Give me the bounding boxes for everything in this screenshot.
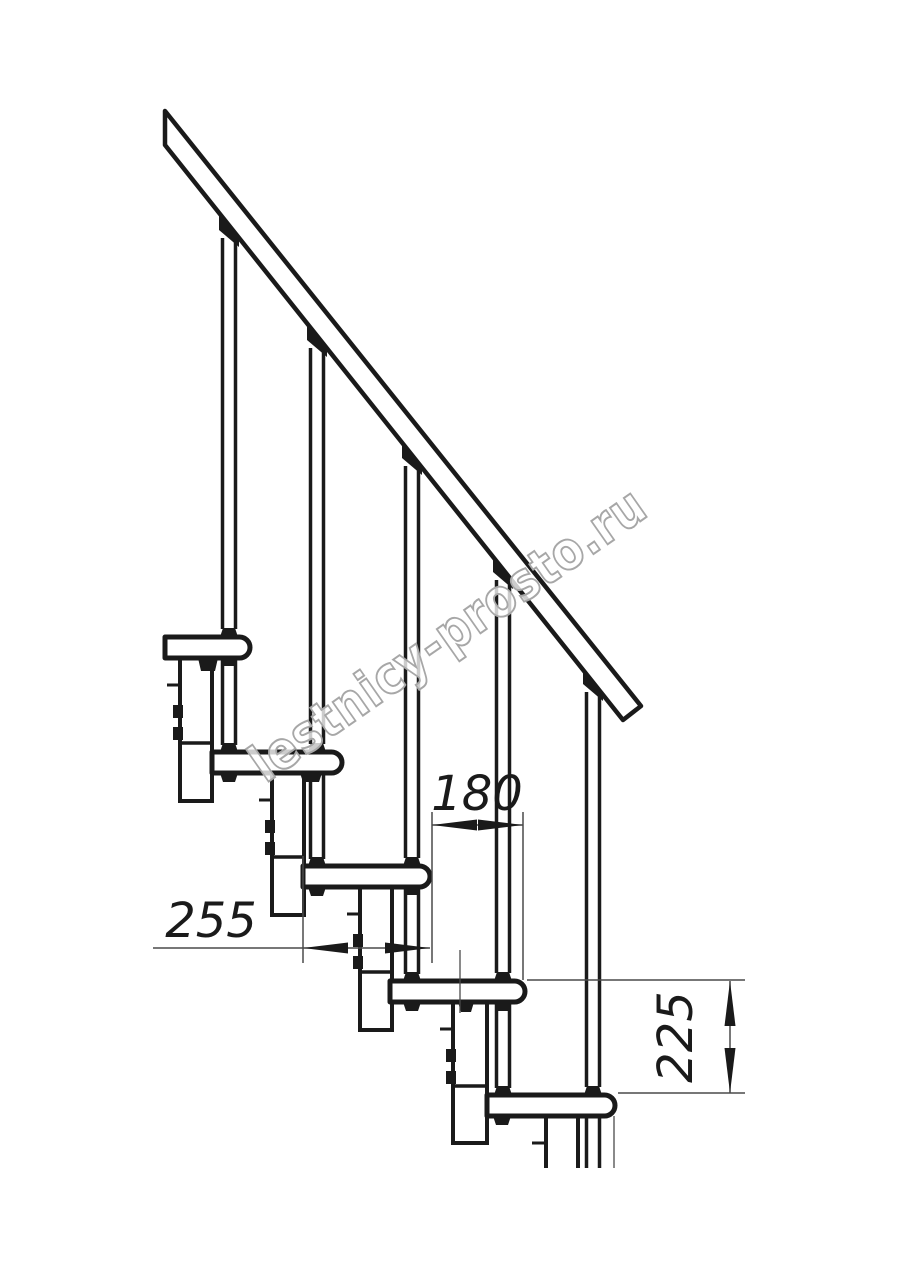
nut — [403, 887, 421, 895]
nut — [403, 1002, 421, 1011]
support-module-3 — [347, 887, 392, 1030]
nut — [308, 887, 326, 896]
foot — [308, 857, 326, 866]
watermark-text: lestnicy-prosto.ru — [239, 476, 658, 795]
tread-3 — [303, 866, 430, 887]
dim-180-label: 180 — [431, 766, 523, 822]
module-2-bolt — [265, 820, 275, 833]
module-1-bolt — [173, 727, 183, 740]
tread-5 — [487, 1095, 615, 1116]
module-2-bolt — [265, 842, 275, 855]
collar — [403, 857, 421, 866]
module-3-bolt — [353, 934, 363, 947]
arrow-left — [303, 943, 348, 954]
watermark: lestnicy-prosto.ru — [239, 476, 658, 795]
tread-4 — [390, 981, 525, 1002]
foot — [494, 1086, 512, 1095]
nut — [198, 658, 218, 671]
module-3-bolt — [353, 956, 363, 969]
dim-255-label: 255 — [165, 893, 257, 949]
nut — [300, 773, 322, 782]
support-module-1 — [167, 658, 212, 801]
foot — [220, 743, 238, 752]
support-module-2 — [259, 773, 304, 915]
arrow-down — [725, 1048, 736, 1093]
foot — [403, 972, 421, 981]
collar — [220, 628, 238, 637]
module-4-bolt — [446, 1049, 456, 1062]
baluster-2 — [311, 348, 324, 859]
collar — [584, 1086, 602, 1095]
module-4-bolt — [446, 1071, 456, 1084]
staircase-technical-drawing: 180 255 225 lestnicy-prosto.ru — [0, 0, 914, 1280]
support-module-4 — [440, 1002, 487, 1143]
baluster-4 — [497, 580, 510, 1088]
dimension-225: 225 — [527, 980, 745, 1093]
nut — [494, 1002, 512, 1011]
tread-1 — [165, 637, 250, 658]
module-1-bolt — [173, 705, 183, 718]
dim-225-label: 225 — [648, 991, 704, 1083]
nut — [220, 773, 238, 782]
baluster-3 — [406, 466, 419, 974]
arrow-up — [725, 981, 736, 1026]
support-module-5 — [532, 1116, 614, 1168]
collar — [494, 972, 512, 981]
baluster-1 — [223, 238, 236, 745]
arrow-right — [385, 943, 430, 954]
nut — [493, 1116, 511, 1125]
